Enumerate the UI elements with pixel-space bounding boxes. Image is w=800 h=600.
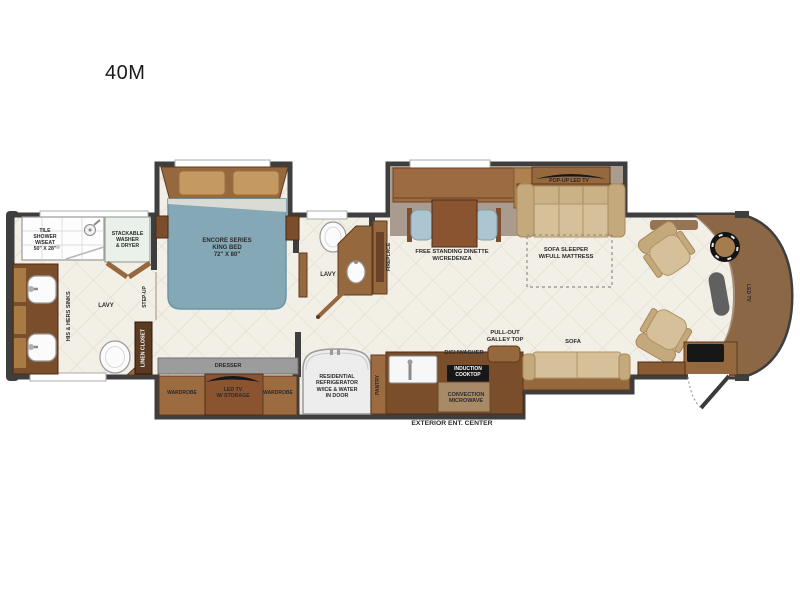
step-well <box>687 344 724 362</box>
label-exterior-ent-center: EXTERIOR ENT. CENTER <box>390 420 514 428</box>
dinette-chair-left <box>411 210 433 240</box>
credenza <box>393 168 514 202</box>
floorplan-title: 40M <box>105 62 145 85</box>
pillow-right <box>233 171 279 195</box>
label-dinette: FREE STANDING DINETTE W/CREDENZA <box>402 249 502 263</box>
galley-sink <box>389 356 437 383</box>
sofa-arm-left <box>523 354 535 380</box>
dash-cabinet <box>638 362 685 375</box>
label-dishwasher: DISHWASHER <box>429 350 499 357</box>
label-lavy-mid: LAVY <box>308 272 348 279</box>
sofa-arm-right <box>608 184 625 237</box>
label-pullout-galley: PULL-OUT GALLEY TOP <box>470 330 540 344</box>
label-his-hers-sinks: HIS & HERS SINKS <box>66 280 72 352</box>
toilet <box>100 341 130 373</box>
faucet-icon <box>408 360 413 365</box>
door-swing-arc <box>688 377 701 408</box>
label-step-up: STEP-UP <box>143 277 149 317</box>
floorplan-svg <box>0 0 800 600</box>
sofa-back-cushions <box>534 186 608 204</box>
mid-bath-sink <box>347 261 365 283</box>
sofa-arm-left <box>517 184 534 237</box>
label-led-tv-front: LED TV <box>744 273 750 313</box>
label-tile-shower: TILE SHOWER W/SEAT 50" X 28" <box>22 228 68 253</box>
nightstand-right <box>286 216 299 240</box>
floorplan-page: 40M TILE SHOWER W/SEAT 50" X 28" STACKAB… <box>0 0 800 600</box>
label-convection-microwave: CONVECTION MICROWAVE <box>431 392 501 405</box>
label-induction-cooktop: INDUCTION COOKTOP <box>441 367 495 379</box>
bedroom <box>156 167 299 415</box>
label-popup-tv: POP-UP LED TV <box>529 178 609 184</box>
label-sofa-sleeper: SOFA SLEEPER W/FULL MATTRESS <box>516 247 616 261</box>
pillow-left <box>179 171 225 195</box>
label-sofa: SOFA <box>548 339 598 346</box>
label-king-bed: ENCORE SERIES KING BED 72" X 80" <box>182 238 272 259</box>
label-linen-closet: LINEN CLOSET <box>140 321 146 376</box>
label-wardrobe-right: WARDROBE <box>254 391 302 397</box>
label-wardrobe-left: WARDROBE <box>158 391 206 397</box>
label-pantry: PANTRY <box>376 363 382 407</box>
label-lavy-rear: LAVY <box>86 303 126 310</box>
sofa-arm-right <box>619 354 630 380</box>
sofa <box>523 352 630 390</box>
label-dresser: DRESSER <box>183 363 273 369</box>
label-stackable-washer-dryer: STACKABLE WASHER & DRYER <box>104 231 151 249</box>
sofa-seat-cushions <box>534 204 608 237</box>
label-refrigerator: RESIDENTIAL REFRIGERATOR W/ICE & WATER I… <box>302 374 372 399</box>
vanity-his-hers <box>13 264 58 374</box>
dinette-chair-right <box>475 210 497 240</box>
dinette-table <box>432 200 477 247</box>
nightstand-left <box>156 216 168 238</box>
label-fireplace: FIREPLACE <box>387 227 393 287</box>
